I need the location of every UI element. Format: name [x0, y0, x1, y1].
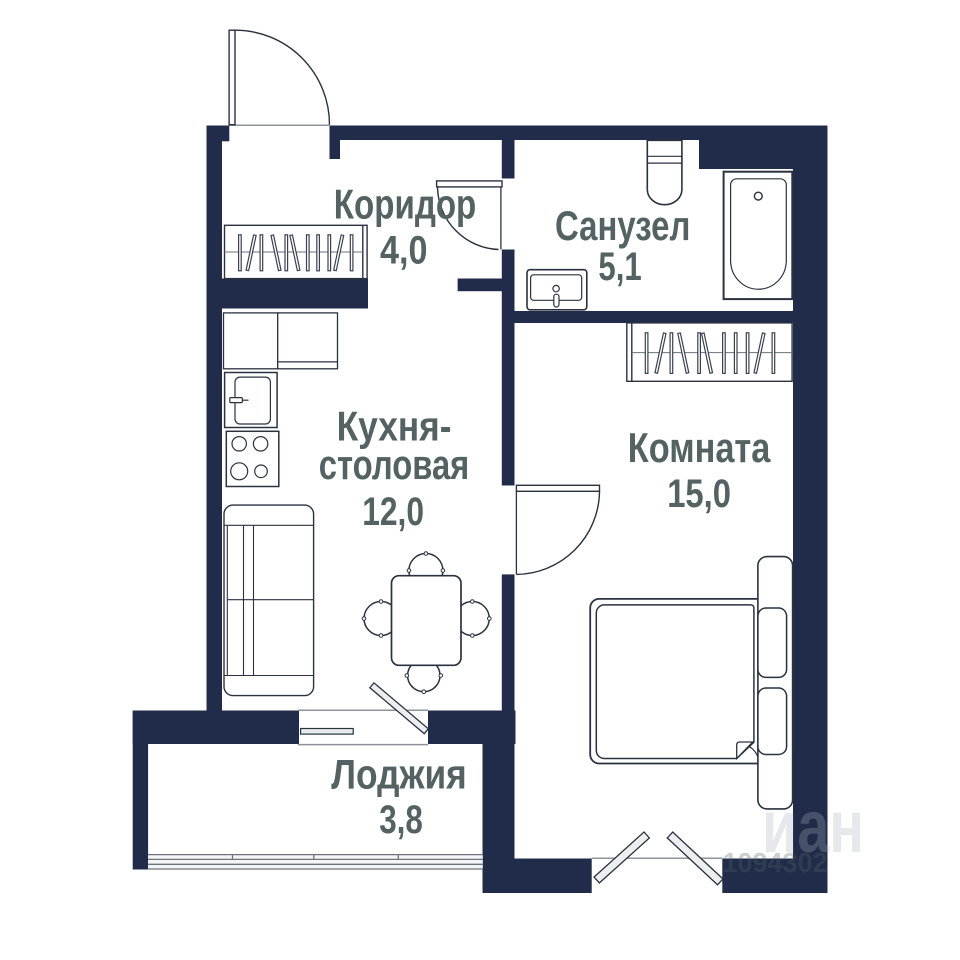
svg-text:1094302: 1094302	[723, 847, 828, 878]
svg-text:Коридор: Коридор	[334, 181, 477, 228]
svg-text:Лоджия: Лоджия	[331, 751, 466, 798]
svg-text:12,0: 12,0	[362, 490, 424, 534]
svg-text:столовая: столовая	[319, 441, 470, 488]
svg-text:3,8: 3,8	[379, 798, 423, 842]
svg-text:Комната: Комната	[628, 424, 771, 471]
svg-text:4,0: 4,0	[380, 229, 428, 273]
svg-text:Санузел: Санузел	[555, 202, 690, 249]
svg-text:5,1: 5,1	[598, 245, 641, 289]
svg-text:15,0: 15,0	[667, 472, 731, 516]
